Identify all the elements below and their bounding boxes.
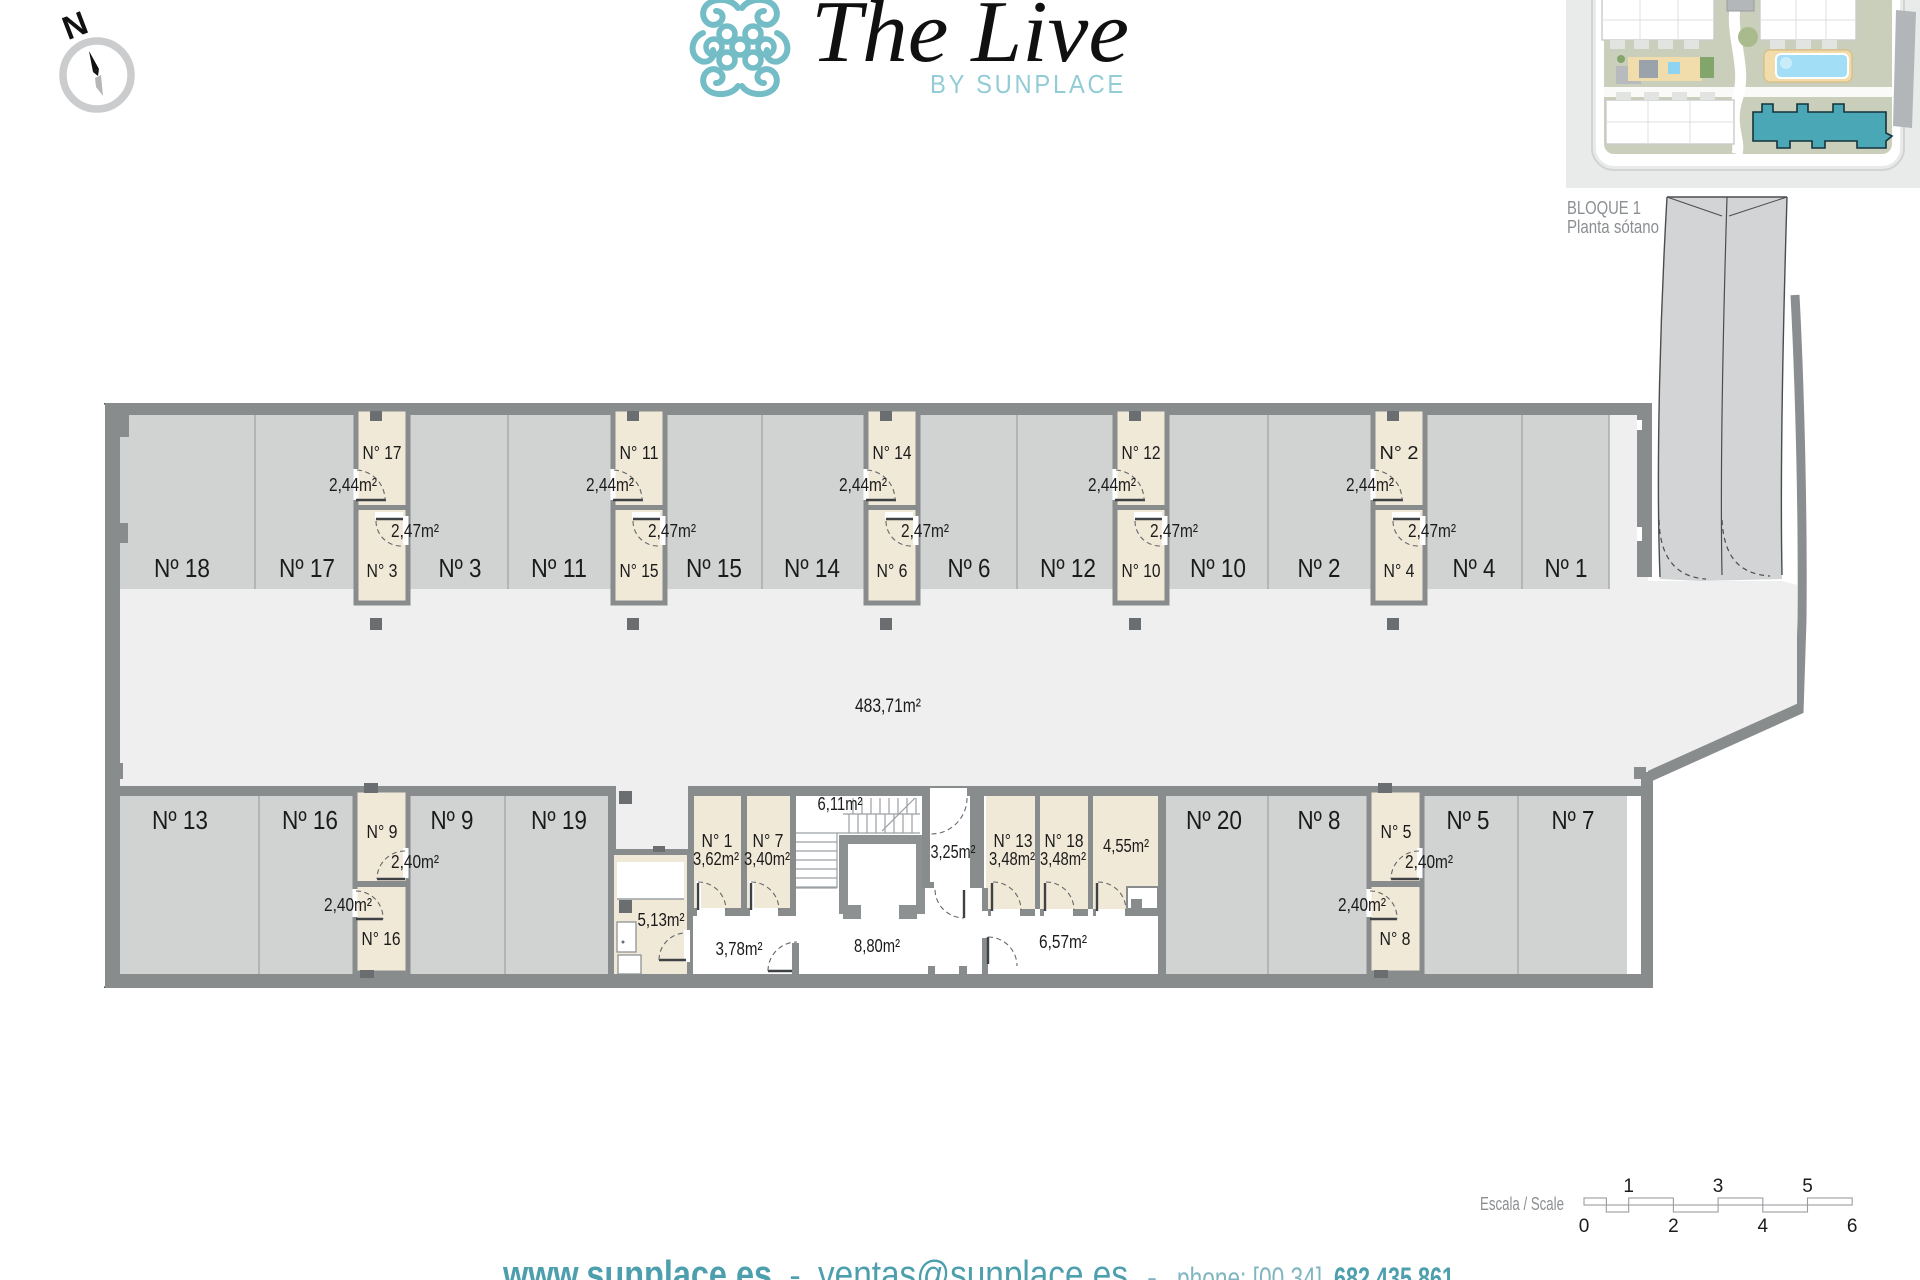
svg-text:2,40m²: 2,40m² <box>324 894 372 915</box>
svg-text:N° 6: N° 6 <box>877 560 908 581</box>
svg-text:2,47m²: 2,47m² <box>1408 520 1456 541</box>
svg-text:www.sunplace.es: www.sunplace.es <box>502 1254 772 1280</box>
svg-text:phone: [00 34]: phone: [00 34] <box>1177 1262 1322 1280</box>
svg-text:6: 6 <box>1847 1216 1858 1237</box>
svg-text:Nº 4: Nº 4 <box>1453 553 1496 583</box>
svg-text:Nº 3: Nº 3 <box>439 553 482 583</box>
svg-text:2,44m²: 2,44m² <box>1088 474 1136 495</box>
svg-text:N° 9: N° 9 <box>367 821 398 842</box>
svg-text:N° 17: N° 17 <box>363 442 402 463</box>
svg-text:3,78m²: 3,78m² <box>716 938 763 959</box>
svg-text:N° 14: N° 14 <box>873 442 912 463</box>
svg-text:N° 4: N° 4 <box>1384 560 1415 581</box>
svg-text:ventas@sunplace.es: ventas@sunplace.es <box>818 1254 1128 1280</box>
svg-text:N° 15: N° 15 <box>620 560 659 581</box>
svg-text:Nº 9: Nº 9 <box>431 805 474 835</box>
svg-text:5,13m²: 5,13m² <box>638 909 685 930</box>
svg-text:2: 2 <box>1668 1216 1679 1237</box>
svg-text:N° 3: N° 3 <box>367 560 398 581</box>
svg-text:Nº 20: Nº 20 <box>1186 805 1242 835</box>
svg-text:Nº 19: Nº 19 <box>531 805 587 835</box>
svg-text:Nº 18: Nº 18 <box>154 553 210 583</box>
svg-text:3,48m²: 3,48m² <box>1040 848 1086 869</box>
svg-text:Nº 12: Nº 12 <box>1040 553 1096 583</box>
svg-text:Nº 6: Nº 6 <box>948 553 991 583</box>
svg-text:2,47m²: 2,47m² <box>1150 520 1198 541</box>
svg-text:2,44m²: 2,44m² <box>839 474 887 495</box>
svg-text:Nº 1: Nº 1 <box>1545 553 1588 583</box>
svg-text:2,44m²: 2,44m² <box>329 474 377 495</box>
svg-text:Nº 10: Nº 10 <box>1190 553 1246 583</box>
svg-text:6,57m²: 6,57m² <box>1039 931 1087 952</box>
svg-text:483,71m²: 483,71m² <box>855 695 921 717</box>
svg-text:2,44m²: 2,44m² <box>1346 474 1394 495</box>
svg-text:2,40m²: 2,40m² <box>391 851 439 872</box>
svg-text:Nº 2: Nº 2 <box>1298 553 1341 583</box>
svg-text:-: - <box>789 1257 800 1280</box>
svg-text:N° 16: N° 16 <box>362 928 401 949</box>
svg-text:Planta sótano: Planta sótano <box>1567 216 1659 237</box>
svg-text:Nº 13: Nº 13 <box>152 805 208 835</box>
svg-text:Nº 16: Nº 16 <box>282 805 338 835</box>
svg-text:N° 10: N° 10 <box>1122 560 1161 581</box>
svg-text:N° 2: N° 2 <box>1380 442 1419 463</box>
svg-text:Nº 5: Nº 5 <box>1447 805 1490 835</box>
svg-text:N° 11: N° 11 <box>620 442 659 463</box>
svg-text:2,40m²: 2,40m² <box>1338 894 1386 915</box>
svg-text:BY SUNPLACE: BY SUNPLACE <box>930 69 1126 99</box>
svg-text:2,47m²: 2,47m² <box>901 520 949 541</box>
svg-text:3,48m²: 3,48m² <box>989 848 1035 869</box>
svg-text:2,47m²: 2,47m² <box>391 520 439 541</box>
svg-text:8,80m²: 8,80m² <box>854 935 900 956</box>
svg-text:2,44m²: 2,44m² <box>586 474 634 495</box>
svg-text:6,11m²: 6,11m² <box>818 793 863 814</box>
svg-text:3,62m²: 3,62m² <box>693 848 739 869</box>
svg-text:3,25m²: 3,25m² <box>931 841 976 862</box>
svg-text:-: - <box>1147 1261 1157 1280</box>
svg-text:N° 5: N° 5 <box>1381 821 1412 842</box>
svg-text:Nº 8: Nº 8 <box>1298 805 1341 835</box>
svg-text:4: 4 <box>1758 1216 1769 1237</box>
svg-text:Nº 17: Nº 17 <box>279 553 335 583</box>
svg-text:3: 3 <box>1713 1176 1724 1197</box>
svg-text:N° 12: N° 12 <box>1122 442 1161 463</box>
svg-text:2,47m²: 2,47m² <box>648 520 696 541</box>
svg-text:Escala / Scale: Escala / Scale <box>1480 1194 1564 1214</box>
svg-text:N° 8: N° 8 <box>1380 928 1411 949</box>
svg-text:Nº 11: Nº 11 <box>531 553 587 583</box>
svg-text:4,55m²: 4,55m² <box>1103 835 1149 856</box>
svg-text:682 435 861: 682 435 861 <box>1334 1262 1454 1280</box>
svg-text:BLOQUE 1: BLOQUE 1 <box>1567 197 1641 218</box>
svg-text:Nº 14: Nº 14 <box>784 553 840 583</box>
svg-text:1: 1 <box>1623 1176 1634 1197</box>
svg-text:2,40m²: 2,40m² <box>1405 851 1453 872</box>
svg-text:Nº 15: Nº 15 <box>686 553 742 583</box>
svg-text:3,40m²: 3,40m² <box>744 848 790 869</box>
svg-text:Nº 7: Nº 7 <box>1552 805 1595 835</box>
svg-text:5: 5 <box>1802 1176 1813 1197</box>
svg-text:0: 0 <box>1579 1216 1590 1237</box>
